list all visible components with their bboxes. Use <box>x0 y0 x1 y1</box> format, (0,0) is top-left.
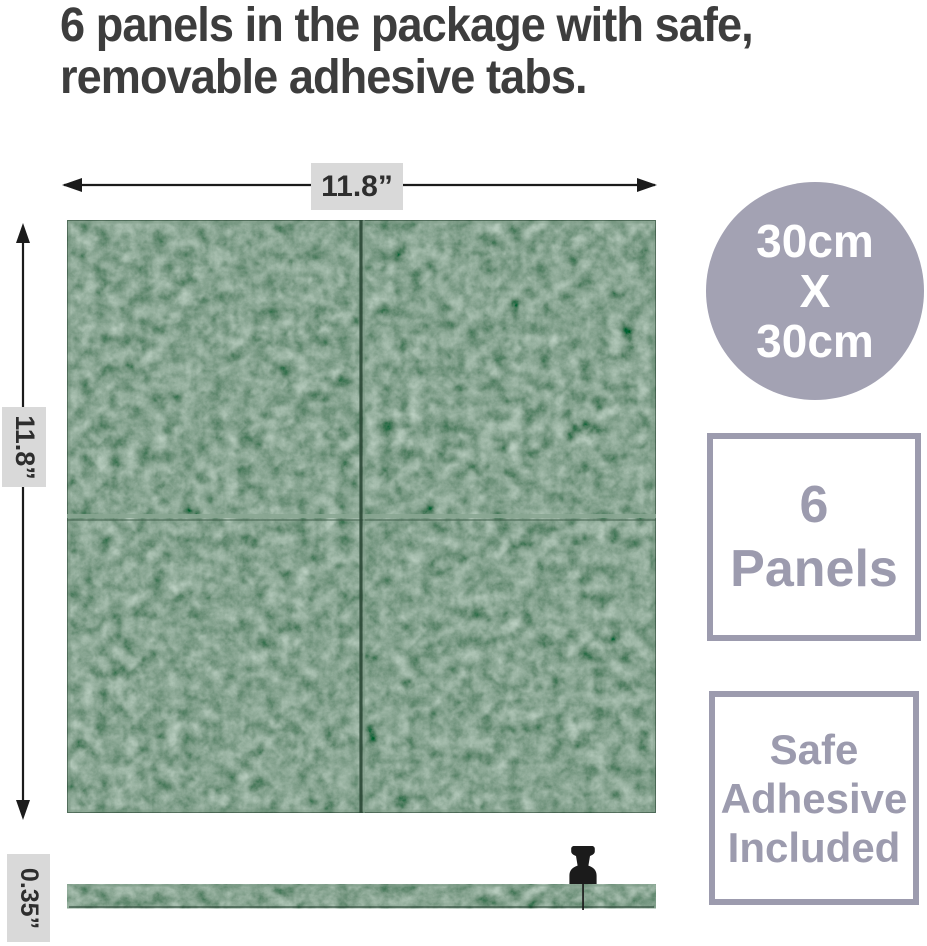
height-dimension-value: 11.8” <box>9 415 40 480</box>
height-dimension-label: 11.8” <box>2 407 46 487</box>
size-badge: 30cm X 30cm <box>706 182 924 400</box>
acoustic-panel-photo <box>67 220 656 813</box>
panel-count-word: Panels <box>730 537 898 601</box>
product-info-image: 6 panels in the package with safe, remov… <box>0 0 927 946</box>
page-title-line2: removable adhesive tabs. <box>60 52 868 104</box>
height-arrow-icon <box>8 216 42 828</box>
thickness-dimension-label: 0.35” <box>7 854 50 942</box>
adhesive-badge-line2: Adhesive <box>721 774 908 823</box>
pushpin-icon <box>563 844 603 914</box>
adhesive-badge-line3: Included <box>728 823 901 872</box>
size-badge-line1: 30cm <box>756 216 874 266</box>
page-title-line1: 6 panels in the package with safe, <box>60 0 868 52</box>
width-dimension-label: 11.8” <box>311 163 403 210</box>
panel-count-number: 6 <box>800 473 829 537</box>
size-badge-line2: X <box>800 266 831 316</box>
adhesive-badge: Safe Adhesive Included <box>709 691 919 905</box>
thickness-dimension-value: 0.35” <box>14 867 43 928</box>
adhesive-badge-line1: Safe <box>770 725 859 774</box>
panel-count-badge: 6 Panels <box>707 433 921 641</box>
page-title: 6 panels in the package with safe, remov… <box>60 0 868 104</box>
width-dimension-value: 11.8” <box>321 170 393 204</box>
size-badge-line3: 30cm <box>756 316 874 366</box>
